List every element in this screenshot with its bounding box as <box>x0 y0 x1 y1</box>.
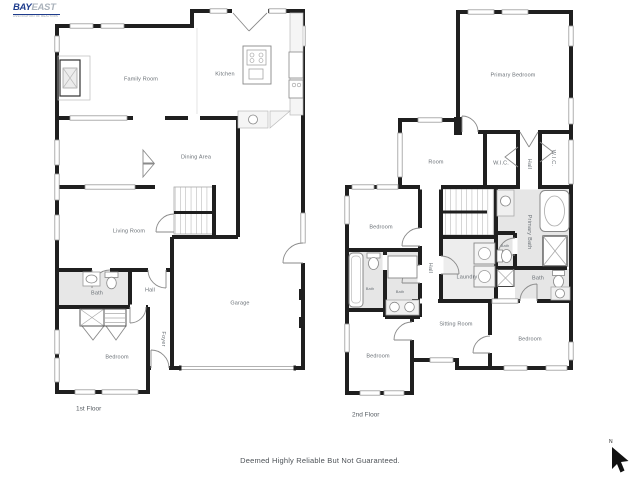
room-label-bath-wc: Bath <box>501 244 510 248</box>
floor1-stairs-icon <box>174 187 213 234</box>
floor1-plan <box>55 9 306 395</box>
floor1-fixtures <box>58 13 305 328</box>
room-label-bedroom-br: Bedroom <box>518 336 541 342</box>
room-label-room: Room <box>428 159 443 165</box>
north-arrow-icon <box>612 447 629 473</box>
room-label-bath-tub: Bath <box>366 287 375 291</box>
floor2-stairs-icon <box>441 189 494 235</box>
logo-bay-text: BAY <box>13 2 31 13</box>
room-label-hall-lower: Hall <box>427 263 433 273</box>
room-label-garage: Garage <box>230 300 249 306</box>
kitchen-sink-icon <box>249 115 258 124</box>
stove-icon <box>289 80 303 98</box>
sink-icon <box>405 302 415 312</box>
floorplan-page: Family Room Kitchen Dining Area Living R… <box>0 0 640 480</box>
room-label-hall-f1: Hall <box>145 287 155 293</box>
floor1-label: 1st Floor <box>76 405 101 412</box>
room-label-bedroom-bl: Bedroom <box>366 353 389 359</box>
sink-icon <box>390 302 400 312</box>
kitchen-island-icon <box>243 46 271 84</box>
disclaimer-text: Deemed Highly Reliable But Not Guarantee… <box>240 456 400 465</box>
sink-icon <box>556 289 565 298</box>
shower-icon <box>388 256 417 278</box>
room-label-bedroom-f1: Bedroom <box>105 354 128 360</box>
room-label-wic-right: W.I.C. <box>550 150 556 166</box>
bathtub-icon <box>349 253 363 307</box>
room-label-sitting-room: Sitting Room <box>439 321 472 327</box>
room-label-hall-upper: Hall <box>526 159 532 169</box>
fridge-icon <box>289 52 303 78</box>
room-label-bath-double: Bath <box>396 290 405 294</box>
room-label-bath-f1: Bath <box>91 290 103 296</box>
wc-toilet-icon <box>502 250 512 263</box>
room-label-primary-bath: Primary Bath <box>526 215 532 250</box>
room-label-laundry: Laundry <box>457 274 478 280</box>
linen-closet-icon <box>104 309 126 326</box>
room-label-kitchen: Kitchen <box>215 71 234 77</box>
primary-sink-icon <box>501 196 511 206</box>
room-label-dining-area: Dining Area <box>181 154 211 160</box>
room-label-family-room: Family Room <box>124 76 158 82</box>
room-label-wic-left: W.I.C. <box>493 160 509 166</box>
toilet-icon <box>369 258 379 270</box>
room-label-foyer: Foyer <box>160 331 166 346</box>
bayeast-logo: BAY EAST ASSOCIATION OF REALTORS <box>13 2 73 22</box>
logo-east-text: EAST <box>31 2 55 13</box>
toilet-icon <box>554 276 564 288</box>
room-label-primary-bedroom: Primary Bedroom <box>490 72 535 78</box>
toilet-icon <box>107 277 117 289</box>
north-label: N <box>609 439 613 445</box>
room-label-bedroom-mid: Bedroom <box>369 224 392 230</box>
logo-tagline: ASSOCIATION OF REALTORS <box>13 15 38 18</box>
bath-sink-icon <box>86 275 97 283</box>
room-label-bath-right: Bath <box>532 275 544 281</box>
floor2-label: 2nd Floor <box>352 411 379 418</box>
room-label-living-room: Living Room <box>113 228 145 234</box>
